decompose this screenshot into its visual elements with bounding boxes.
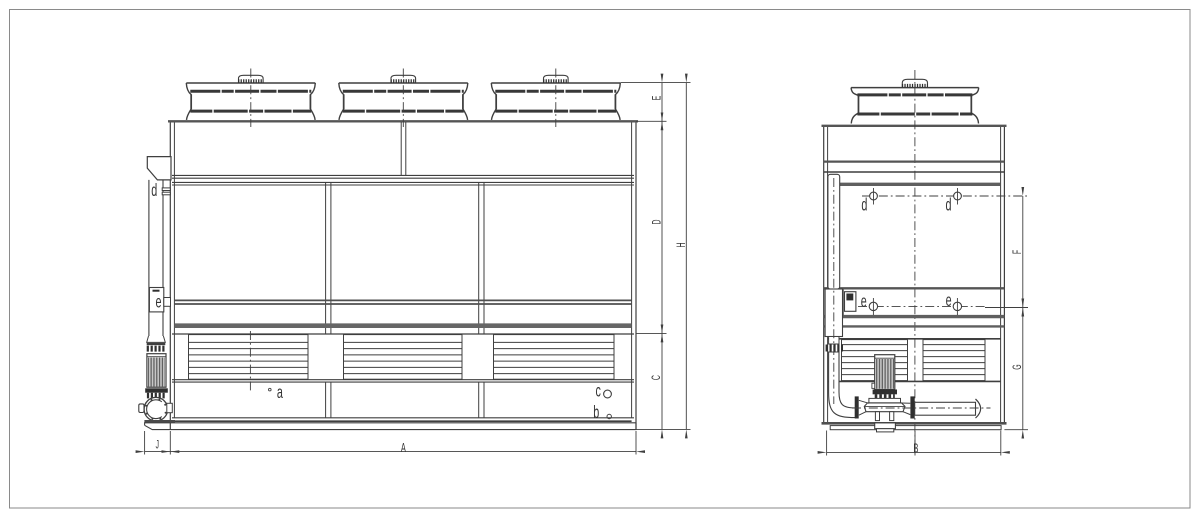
svg-text:c: c — [595, 382, 601, 401]
svg-text:e: e — [155, 293, 161, 312]
svg-text:b: b — [593, 404, 599, 423]
svg-text:e: e — [946, 291, 952, 310]
svg-text:C: C — [650, 375, 663, 380]
svg-text:d: d — [945, 196, 951, 215]
svg-text:H: H — [675, 242, 688, 247]
svg-text:E: E — [651, 95, 664, 100]
svg-text:d: d — [861, 196, 867, 215]
svg-text:B: B — [913, 441, 918, 456]
svg-text:A: A — [401, 441, 407, 456]
svg-text:e: e — [861, 292, 867, 311]
svg-text:d: d — [151, 182, 157, 201]
svg-text:G: G — [1011, 364, 1024, 369]
svg-text:D: D — [651, 219, 664, 224]
svg-text:J: J — [156, 438, 159, 451]
svg-text:F: F — [1011, 250, 1024, 254]
svg-text:a: a — [277, 383, 284, 402]
